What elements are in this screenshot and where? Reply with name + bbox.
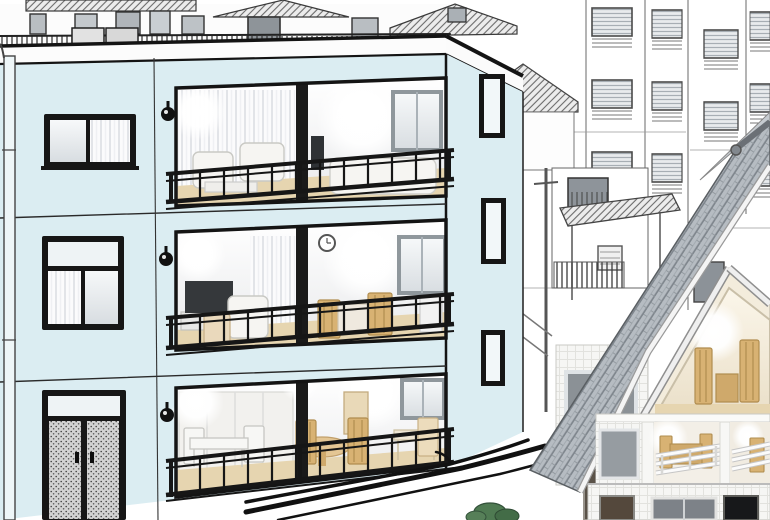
balcony-bay-2 <box>730 420 770 484</box>
house-window <box>448 8 466 22</box>
cutaway-neighborhood-illustration <box>0 0 770 520</box>
right-house-ground-floor <box>588 484 770 520</box>
entry-double-door <box>42 390 126 520</box>
gray-window <box>600 430 638 478</box>
wicker-chair <box>204 314 230 344</box>
black-window <box>724 496 758 520</box>
ridge-end-tile <box>731 145 741 155</box>
ceiling-light-glow <box>170 226 226 282</box>
window-interior <box>399 237 445 293</box>
side-wall-windows <box>479 74 506 386</box>
window-interior <box>402 380 444 418</box>
main-building <box>0 36 523 520</box>
tv <box>311 136 324 170</box>
window-floor2 <box>42 236 124 330</box>
ceiling-light-glow <box>170 84 226 140</box>
house-window <box>30 14 46 34</box>
house-window <box>150 11 170 34</box>
attic-table <box>716 374 738 402</box>
illustration-canvas <box>0 0 770 520</box>
white-pillar <box>720 422 730 484</box>
hatched-roof <box>26 0 196 11</box>
cutaway-room-floor3 <box>170 72 446 206</box>
door-handle <box>75 452 79 463</box>
tv <box>185 281 233 313</box>
ceiling-light-glow <box>322 214 410 302</box>
balcony-bay-1 <box>648 418 720 484</box>
dark-window <box>600 496 634 520</box>
lattice-fence <box>554 262 624 288</box>
coffee-table <box>205 182 257 192</box>
bush <box>495 509 519 520</box>
wall-clock <box>319 235 335 251</box>
window-interior <box>393 92 441 150</box>
bush <box>466 511 486 520</box>
house-window <box>182 16 204 34</box>
right-house-middle-floor <box>596 414 770 484</box>
sliding-glass-door <box>652 498 716 520</box>
window-floor3 <box>41 114 139 170</box>
door-handle <box>90 452 94 463</box>
